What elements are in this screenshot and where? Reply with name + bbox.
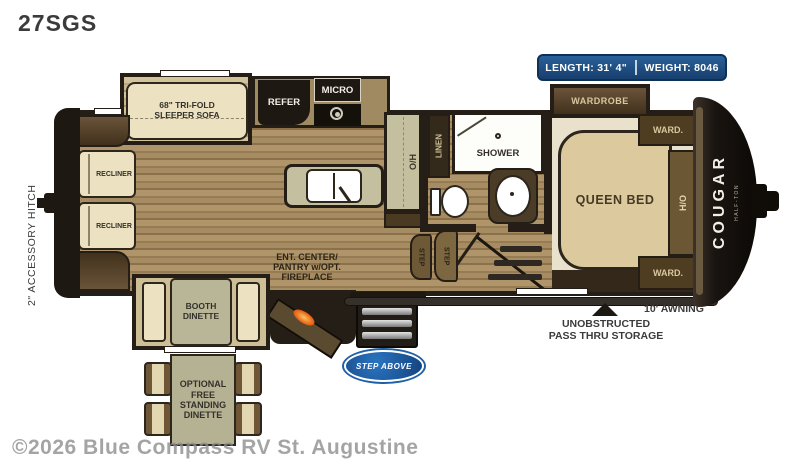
kingpin-icon xyxy=(751,184,767,218)
vanity-faucet-icon xyxy=(510,192,514,196)
bath-bottom-wall-right xyxy=(508,224,552,232)
floorplan-page: 27SGS LENGTH: 31' 4" WEIGHT: 8046 2" ACC… xyxy=(0,0,800,465)
counter-base-cabinet xyxy=(384,212,422,228)
overhead-bedroom-label: H/O xyxy=(678,195,688,211)
shower-head-icon xyxy=(495,133,501,139)
stair-tread-3 xyxy=(488,274,542,280)
stair-tread-1 xyxy=(500,246,542,252)
ward-bottom-label: WARD. xyxy=(653,268,683,278)
optional-dinette-table: OPTIONAL FREE STANDING DINETTE xyxy=(170,354,236,446)
counter-dash-line xyxy=(403,117,404,207)
entry-step-tread xyxy=(362,308,412,315)
dinette-chair xyxy=(234,402,262,436)
ent-center-label: ENT. CENTER/ PANTRY w/OPT. FIREPLACE xyxy=(256,252,358,282)
dinette-chair xyxy=(234,362,262,396)
booth-dinette-label: BOOTH DINETTE xyxy=(176,302,226,322)
wardrobe-slide-label: WARDROBE xyxy=(571,96,629,106)
passthru-label: UNOBSTRUCTED PASS THRU STORAGE xyxy=(538,318,674,342)
dinette-bench-left xyxy=(142,282,166,342)
ent-center-label-line3: FIREPLACE xyxy=(256,272,358,282)
toilet-bowl xyxy=(441,185,469,218)
step-2: STEP xyxy=(434,230,458,282)
rear-top-cabinet xyxy=(76,115,130,147)
kingpin-stub-icon xyxy=(766,191,779,211)
shower-label: SHOWER xyxy=(455,145,541,163)
dinette-chair xyxy=(144,362,172,396)
recliner-2-back xyxy=(88,206,90,246)
queen-bed: QUEEN BED xyxy=(558,130,672,270)
ent-center-cabinet xyxy=(266,298,343,359)
entry-step-tread xyxy=(362,320,412,327)
brand-logo: COUGAR xyxy=(711,154,729,249)
wardrobe-slideout: WARDROBE xyxy=(550,84,650,118)
refer-label: REFER xyxy=(268,97,300,108)
recliner-2-label: RECLINER xyxy=(92,204,136,250)
bath-left-wall xyxy=(420,112,428,232)
kitchen-overhead-counter: O/H xyxy=(384,112,422,212)
bottom-wall-window xyxy=(516,288,588,295)
shower-corner-line xyxy=(457,116,487,136)
rear-bottom-cabinet xyxy=(76,251,130,291)
front-cap: COUGAR HALF-TON xyxy=(693,97,757,307)
wardrobe-top-cabinet: WARD. xyxy=(638,114,698,146)
entry-steps xyxy=(356,302,418,348)
micro-label: MICRO xyxy=(322,85,354,96)
bath-right-wall xyxy=(544,112,552,234)
rear-hitch-stub-icon xyxy=(37,198,46,208)
faucet-icon xyxy=(339,186,351,202)
ent-center-label-line2: PANTRY w/OPT. xyxy=(256,262,358,272)
recliner-2: RECLINER xyxy=(78,202,136,250)
step-above-logo: STEP ABOVE xyxy=(344,350,424,382)
toilet-tank xyxy=(430,188,441,216)
refrigerator: REFER xyxy=(258,80,310,125)
dinette-bench-right xyxy=(236,282,260,342)
step-1: STEP xyxy=(410,234,432,280)
linen-cabinet: LINEN xyxy=(428,114,450,178)
weight-spec: WEIGHT: 8046 xyxy=(645,62,719,74)
range-cooktop xyxy=(314,104,361,126)
wardrobe-bottom-cabinet: WARD. xyxy=(638,256,698,290)
length-spec: LENGTH: 31' 4" xyxy=(545,62,627,74)
microwave: MICRO xyxy=(314,78,361,102)
spec-badge: LENGTH: 31' 4" WEIGHT: 8046 xyxy=(537,54,727,81)
dinette-slide-window xyxy=(164,346,236,353)
front-cap-liner xyxy=(696,107,703,295)
overhead-kitchen-label: O/H xyxy=(405,115,421,209)
dinette-chair xyxy=(144,402,172,436)
step-above-logo-text: STEP ABOVE xyxy=(356,362,412,371)
dealer-watermark: ©2026 Blue Compass RV St. Augustine xyxy=(12,436,418,460)
vanity-sink xyxy=(488,168,538,224)
sleeper-sofa: 68" TRI-FOLD SLEEPER SOFA xyxy=(126,82,248,140)
burner-dot-icon xyxy=(335,112,340,117)
recliner-1: RECLINER xyxy=(78,150,136,198)
recliner-1-back xyxy=(88,154,90,194)
sofa-seat-line xyxy=(130,118,244,119)
accessory-hitch-label: 2" ACCESSORY HITCH xyxy=(24,120,40,370)
top-wall-window xyxy=(94,108,122,115)
ent-center-corner xyxy=(270,290,356,344)
ward-top-label: WARD. xyxy=(653,125,683,135)
ent-center-label-line1: ENT. CENTER/ xyxy=(256,252,358,262)
passthru-arrow-icon xyxy=(592,303,618,316)
sofa-slide-window xyxy=(160,70,230,77)
dinette-table: BOOTH DINETTE xyxy=(170,278,232,346)
passthru-label-line1: UNOBSTRUCTED xyxy=(538,318,674,330)
sink-divider xyxy=(333,173,335,199)
shower: SHOWER xyxy=(452,112,544,174)
entry-step-tread xyxy=(362,332,412,339)
page-title: 27SGS xyxy=(18,10,97,37)
passthru-label-line2: PASS THRU STORAGE xyxy=(538,330,674,342)
vanity-basin xyxy=(495,175,531,217)
rear-hitch-icon xyxy=(44,193,58,213)
double-sink xyxy=(306,169,362,203)
optional-dinette-label: OPTIONAL FREE STANDING DINETTE xyxy=(175,379,231,420)
stair-tread-2 xyxy=(494,260,542,266)
badge-divider xyxy=(635,60,637,75)
recliner-1-label: RECLINER xyxy=(92,152,136,198)
brand-sub-label: HALF-TON xyxy=(734,184,740,221)
queen-bed-label: QUEEN BED xyxy=(576,193,655,207)
